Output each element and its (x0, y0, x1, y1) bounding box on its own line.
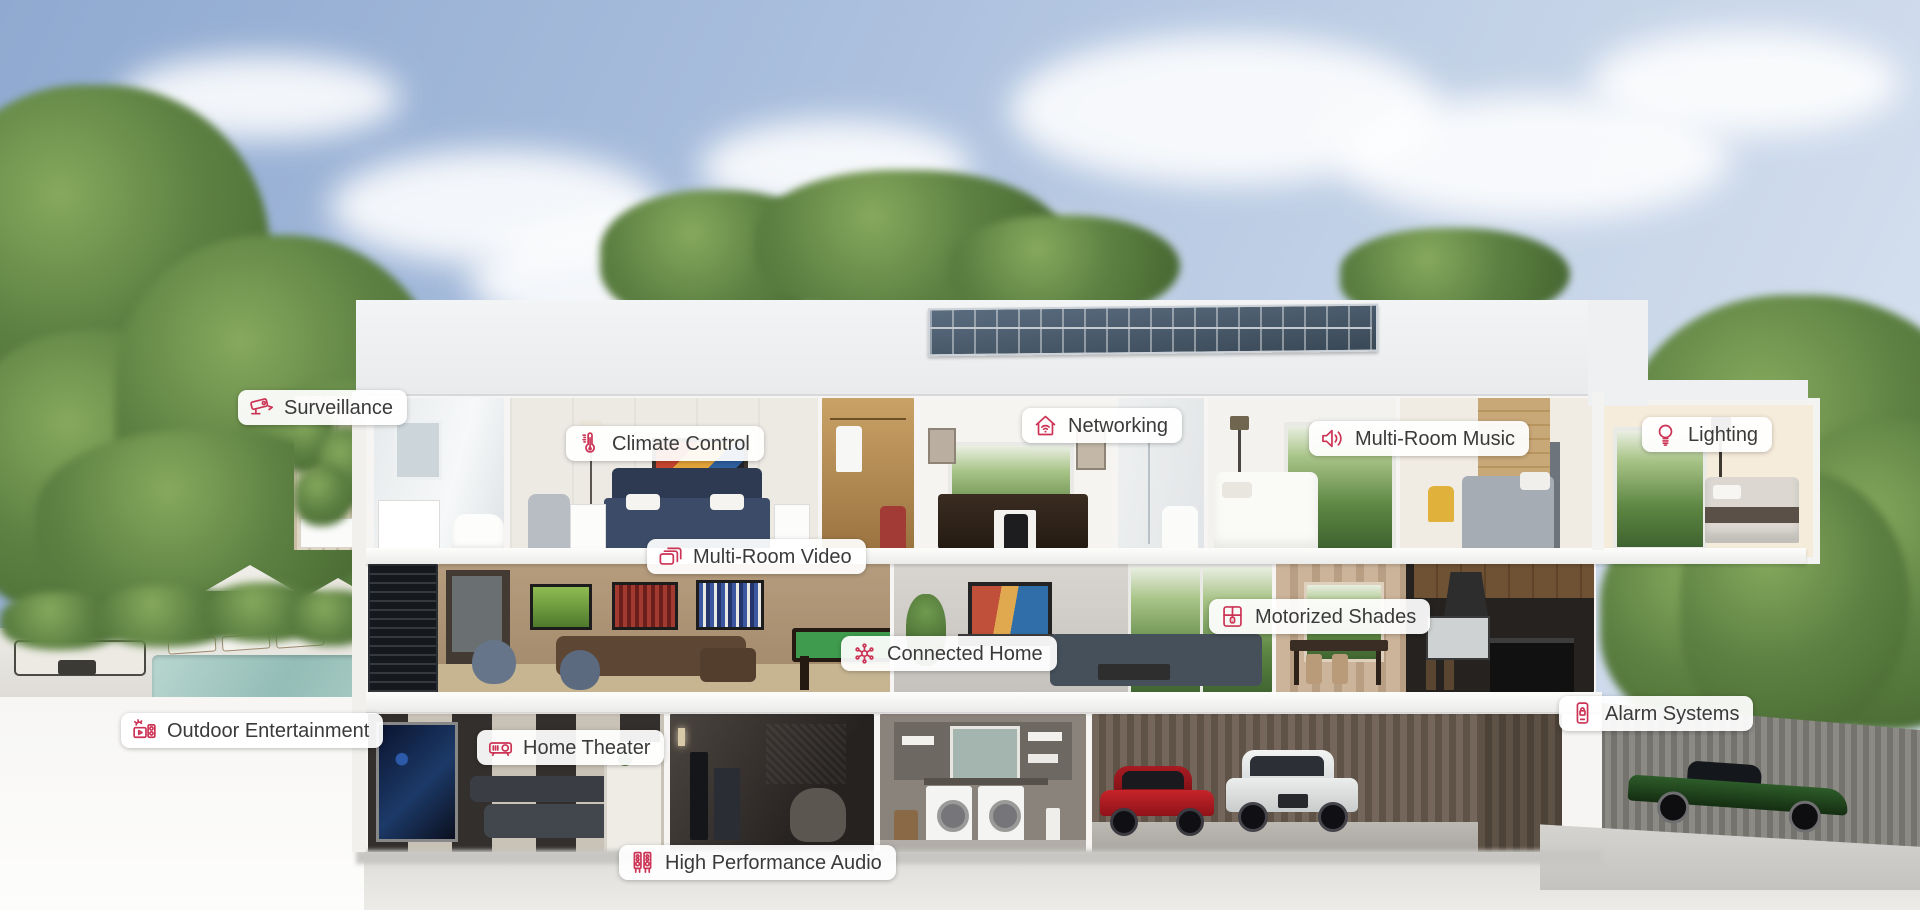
bed-runner (1705, 507, 1799, 523)
bathtub (452, 514, 504, 550)
hotspot-label: Multi-Room Video (693, 544, 852, 570)
hotspot-label: Lighting (1688, 422, 1758, 448)
hotspot-connected-home[interactable]: Connected Home (841, 636, 1057, 671)
towel-stack (1028, 732, 1062, 741)
pool-table-leg (800, 656, 809, 690)
chair (880, 506, 906, 550)
hotspot-label: Surveillance (284, 395, 393, 421)
sofa-chaise (700, 648, 756, 682)
tv-screen-sports (530, 584, 592, 630)
tower-speakers-icon (629, 849, 656, 876)
laundry-mirror (950, 726, 1020, 784)
hotspot-networking[interactable]: Networking (1022, 408, 1182, 443)
picture-frame (928, 428, 956, 464)
range-hood (1444, 572, 1488, 616)
hotspot-label: Home Theater (523, 735, 650, 761)
bean-bag (472, 640, 516, 684)
step-stool (1046, 808, 1060, 844)
hotspot-climate-control[interactable]: Climate Control (566, 426, 764, 461)
smart-home-cutaway-scene: Surveillance Climate Control Networking … (0, 0, 1920, 910)
keypad-lock-icon (1569, 700, 1596, 727)
floor-slab (356, 548, 1806, 564)
room-walk-in-closet (822, 398, 914, 550)
hotspot-multi-room-music[interactable]: Multi-Room Music (1309, 421, 1529, 456)
kitchen-cabinets (1414, 564, 1594, 598)
hotspot-high-performance-audio[interactable]: High Performance Audio (619, 845, 896, 880)
bar-stool (1426, 660, 1436, 690)
hotspot-label: Climate Control (612, 431, 750, 457)
dining-chair (1332, 654, 1348, 684)
dining-chair (1306, 654, 1322, 684)
bar-stool (1444, 660, 1454, 690)
hotspot-surveillance[interactable]: Surveillance (238, 390, 407, 425)
tv-screen-sports (612, 582, 678, 630)
hotspot-label: Multi-Room Music (1355, 426, 1515, 452)
desk-chair (1004, 514, 1028, 550)
closet-rail (830, 418, 906, 420)
hotspot-outdoor-entertainment[interactable]: Outdoor Entertainment (121, 713, 383, 748)
top-floor (362, 392, 1596, 550)
pillow (1222, 482, 1252, 498)
counter (924, 778, 1048, 785)
lamp-pole (1238, 426, 1241, 472)
car-red (1100, 766, 1214, 824)
pillow (1520, 472, 1550, 490)
swimming-pool (152, 655, 370, 703)
cctv-camera-icon (248, 394, 275, 421)
room-media-lounge (438, 564, 890, 692)
bathroom-vanity (378, 500, 440, 550)
network-hub-icon (851, 640, 878, 667)
pool-terrace (0, 540, 372, 705)
pillow (710, 494, 744, 510)
thermometer-icon (576, 430, 603, 457)
room-laundry (880, 714, 1086, 852)
tower-speaker (690, 752, 708, 840)
cloud (1590, 30, 1900, 135)
outdoor-tv-speaker-icon (131, 717, 158, 744)
hotspot-alarm-systems[interactable]: Alarm Systems (1559, 696, 1753, 731)
dryer-door (989, 800, 1021, 832)
car-white-suv (1226, 750, 1358, 826)
oven (1426, 616, 1490, 660)
laundry-basket (894, 810, 918, 844)
armchair (528, 494, 570, 550)
garage (1092, 714, 1562, 852)
pillow (626, 494, 660, 510)
right-wing-roof (1594, 380, 1808, 400)
exterior-wall-edge (352, 392, 366, 852)
towel-stack (1028, 754, 1058, 763)
solar-panel-divider (930, 327, 1372, 329)
hotspot-label: Alarm Systems (1605, 701, 1739, 727)
window-shade-icon (1219, 603, 1246, 630)
bathtub (1162, 506, 1198, 550)
pillow (1713, 485, 1741, 499)
wall-sconce (678, 728, 685, 746)
floor-slab (356, 692, 1602, 712)
bean-bag (560, 650, 600, 690)
lamp-shade (1230, 416, 1249, 430)
yellow-chair (1428, 486, 1454, 522)
hanging-shirt (836, 426, 862, 472)
dining-table (1290, 640, 1388, 651)
av-server-rack (368, 564, 438, 694)
hotspot-label: Connected Home (887, 641, 1043, 667)
house-base-shadow (356, 850, 1602, 864)
hotspot-home-theater[interactable]: Home Theater (477, 730, 664, 765)
hotspot-label: High Performance Audio (665, 850, 882, 876)
nightstand (570, 504, 606, 550)
solar-panels (928, 304, 1378, 357)
speaker-icon (1319, 425, 1346, 452)
towel-stack (902, 736, 934, 745)
bathroom-mirror (394, 420, 442, 480)
projector-icon (487, 734, 514, 761)
hotspot-multi-room-video[interactable]: Multi-Room Video (647, 539, 866, 574)
exterior-wall-edge (1592, 392, 1604, 550)
hotspot-label: Motorized Shades (1255, 604, 1416, 630)
tv-screen-news (968, 582, 1052, 640)
hifi-rack (714, 768, 740, 840)
projector-screen (376, 722, 458, 842)
hotspot-label: Networking (1068, 413, 1168, 439)
room-master-bedroom (510, 398, 818, 550)
acoustic-panel (766, 724, 846, 784)
stacked-screens-icon (657, 543, 684, 570)
room-listening (670, 714, 874, 852)
kitchen-island (1490, 638, 1574, 692)
hotspot-lighting[interactable]: Lighting (1642, 417, 1772, 452)
tv-screen-sports (696, 580, 764, 630)
coffee-table (1098, 664, 1170, 680)
patio-table (58, 660, 96, 675)
table-leg (1294, 651, 1299, 685)
home-wifi-icon (1032, 412, 1059, 439)
listening-chair (790, 788, 846, 842)
hotspot-label: Outdoor Entertainment (167, 718, 369, 744)
lightbulb-icon (1652, 421, 1679, 448)
theater-seats-row (470, 776, 618, 802)
washer-door (937, 800, 969, 832)
table-leg (1376, 651, 1381, 685)
hotspot-motorized-shades[interactable]: Motorized Shades (1209, 599, 1430, 634)
